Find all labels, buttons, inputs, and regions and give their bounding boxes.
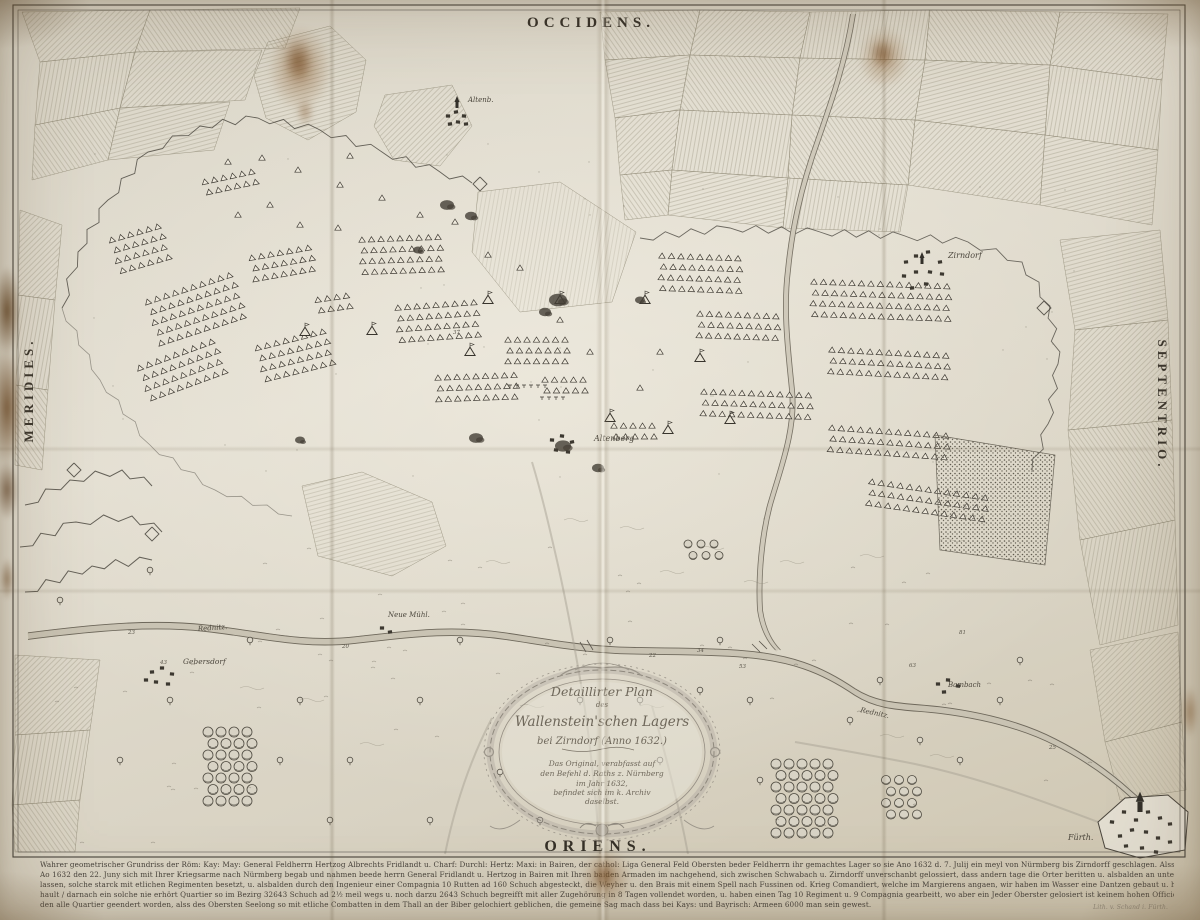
caption-line: den alle Quartier geendert worden, alss …: [40, 900, 1174, 910]
caption-line: Wahrer geometrischer Grundriss der Röm: …: [40, 860, 1174, 870]
caption-line: Ao 1632 den 22. Juny sich mit Ihrer Krie…: [40, 870, 1174, 880]
caption-line: hault / darnach ein solche nie erhört Qu…: [40, 890, 1174, 900]
place-label-fuerth: Fürth.: [1067, 833, 1093, 842]
cartouche-subtitle-line: im Jahr 1632,: [576, 779, 628, 788]
place-label-altenb: Altenb.: [467, 96, 493, 104]
map-number: 63: [909, 663, 916, 669]
map-number: 23: [127, 630, 135, 636]
map-number: 43: [159, 660, 167, 666]
place-label-gebersdorf: Gebersdorf: [183, 657, 227, 666]
compass-north-label: SEPTENTRIO.: [1155, 339, 1170, 470]
cartouche-subtitle-line: daselbst.: [585, 797, 619, 806]
map-engraving: OCCIDENS. ORIENS. MERIDIES. SEPTENTRIO. …: [0, 0, 1200, 920]
cartouche-subtitle-line: den Befehl d. Raths z. Nürnberg: [540, 769, 664, 778]
place-label-neue-muehl: Neue Mühl.: [387, 611, 430, 619]
cartouche-title-line: Detaillirter Plan: [550, 684, 653, 699]
map-number: 34: [697, 648, 704, 654]
caption-line: lassen, solche starck mit etlichen Regim…: [40, 880, 1174, 890]
cartouche-title-line: des: [596, 701, 609, 709]
compass-east-label: ORIENS.: [544, 838, 651, 855]
antique-map-photo: OCCIDENS. ORIENS. MERIDIES. SEPTENTRIO. …: [0, 0, 1200, 920]
map-number: 53: [739, 664, 746, 670]
place-label-bambach: Bambach: [947, 681, 981, 689]
compass-west-label: OCCIDENS.: [527, 15, 655, 31]
cartouche-title-line: bei Zirndorf (Anno 1632.): [537, 736, 667, 747]
place-label-altenberg: Altenberg: [593, 434, 634, 443]
map-number: 20: [341, 644, 349, 650]
cartouche-subtitle-line: Das Original, verabfasst auf: [548, 759, 657, 768]
map-number: 22: [648, 653, 656, 659]
river-label-rednitz-east: Rednitz.: [859, 706, 890, 720]
title-cartouche: Detaillirter Plan des Wallenstein'schen …: [484, 663, 720, 840]
lithographer-credit: Lith. v. Schand i. Fürth.: [1093, 904, 1168, 911]
caption-block: Wahrer geometrischer Grundriss der Röm: …: [40, 860, 1174, 910]
compass-south-label: MERIDIES.: [21, 338, 36, 443]
map-number: 25: [1048, 745, 1056, 751]
cartouche-subtitle-line: befindet sich im k. Archiv: [553, 788, 651, 797]
place-label-zirndorf: Zirndorf: [947, 251, 984, 260]
cartouche-title-line: Wallenstein'schen Lagers: [515, 714, 689, 730]
map-number: 81: [959, 630, 966, 636]
map-number: 37: [453, 330, 460, 336]
